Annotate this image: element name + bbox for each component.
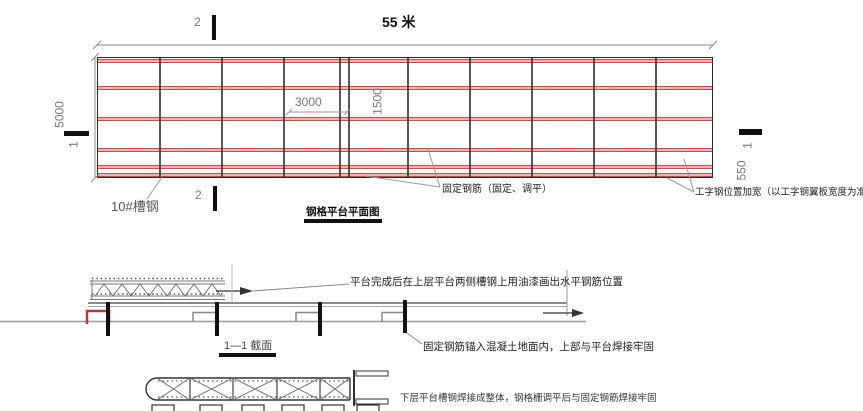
section-1-cut-mark-right [739, 129, 762, 135]
dim-line-3000 [286, 109, 350, 115]
section-marker-1-left: 1 [68, 135, 81, 155]
dim-bay-label: 3000 [295, 96, 322, 110]
leader-rebar [365, 149, 440, 187]
section-2-cut-mark-top [212, 15, 216, 40]
leader-channel [147, 177, 162, 199]
dim-total-width-label: 55 米 [382, 14, 415, 30]
gray-channel-steels [193, 313, 404, 323]
ibeam-widening-label: 工字钢位置加宽（以工字钢翼板宽度为准） [695, 188, 863, 199]
grating-beam [146, 378, 350, 400]
truss-beam [90, 279, 225, 301]
dim-line-55m [93, 41, 717, 49]
paint-position-note: 平台完成后在上层平台两侧槽钢上用油漆画出水平钢筋位置 [350, 276, 623, 288]
dim-height-label: 5000 [54, 95, 67, 135]
lower-platform-note: 下层平台槽钢焊接成整体，钢格栅调平后与固定钢筋焊接牢固 [400, 394, 657, 405]
leader-ibeam [667, 159, 694, 192]
dim-row-label: 1500 [372, 82, 385, 122]
drawing-canvas: 2 2 1 1 55 米 3000 1500 5000 550 10#槽钢 钢格… [0, 0, 863, 411]
fixing-rebar-label: 固定钢筋（固定、调平） [442, 184, 552, 196]
leader-anchor-note [407, 333, 422, 344]
section-1-1-title: 1—1 截面 [224, 340, 272, 353]
plan-title-underline [304, 219, 382, 223]
truss-arrow [216, 264, 349, 302]
section-marker-2-top: 2 [194, 16, 201, 30]
plan-title: 钢格平台平面图 [306, 206, 380, 218]
ibeam-end-bracket [354, 370, 388, 406]
rebar-anchor-note: 固定钢筋锚入混凝土地面内，上部与平台焊接牢固 [423, 341, 654, 353]
fixing-rebars [106, 300, 407, 336]
dim-edge-label: 550 [736, 151, 749, 191]
dim-line-5000 [91, 53, 99, 182]
section-title-underline [219, 353, 276, 357]
channel-steel-label: 10#槽钢 [111, 200, 159, 215]
section-2-cut-mark-bottom [213, 186, 217, 211]
section-marker-2-bottom: 2 [195, 189, 202, 203]
lower-channel-steels [152, 405, 379, 411]
